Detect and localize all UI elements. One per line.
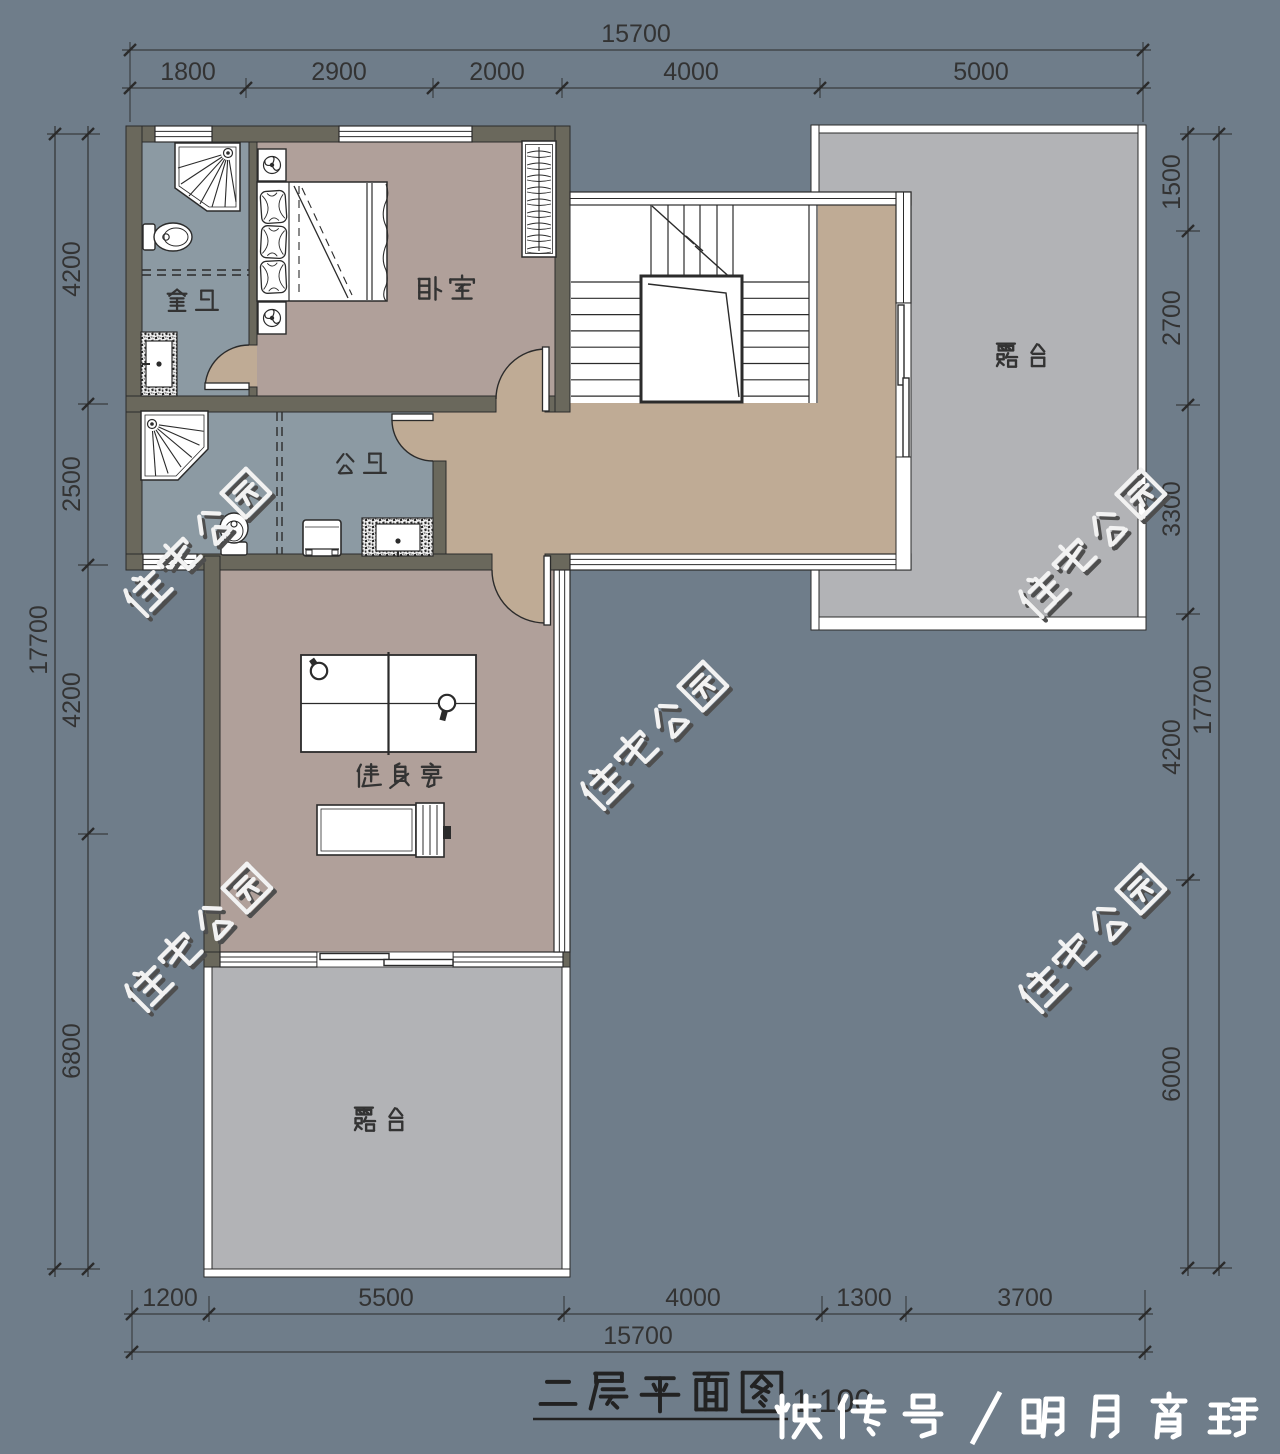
svg-text:5000: 5000 (953, 58, 1009, 86)
svg-text:1800: 1800 (160, 58, 216, 86)
svg-text:1300: 1300 (836, 1284, 892, 1312)
svg-text:2500: 2500 (58, 456, 86, 512)
svg-text:2700: 2700 (1158, 290, 1186, 346)
svg-text:4000: 4000 (663, 58, 719, 86)
svg-text:6000: 6000 (1158, 1046, 1186, 1102)
svg-text:15700: 15700 (601, 20, 671, 48)
svg-text:1500: 1500 (1158, 154, 1186, 210)
svg-text:17700: 17700 (25, 605, 53, 675)
svg-text:3700: 3700 (997, 1284, 1053, 1312)
svg-text:1200: 1200 (142, 1284, 198, 1312)
svg-text:4200: 4200 (1158, 719, 1186, 775)
svg-text:5500: 5500 (358, 1284, 414, 1312)
svg-text:15700: 15700 (603, 1322, 673, 1350)
svg-text:4000: 4000 (665, 1284, 721, 1312)
svg-text:2900: 2900 (311, 58, 367, 86)
svg-text:4200: 4200 (58, 241, 86, 297)
svg-text:2000: 2000 (469, 58, 525, 86)
svg-text:6800: 6800 (58, 1023, 86, 1079)
svg-text:17700: 17700 (1189, 665, 1217, 735)
svg-text:4200: 4200 (58, 672, 86, 728)
